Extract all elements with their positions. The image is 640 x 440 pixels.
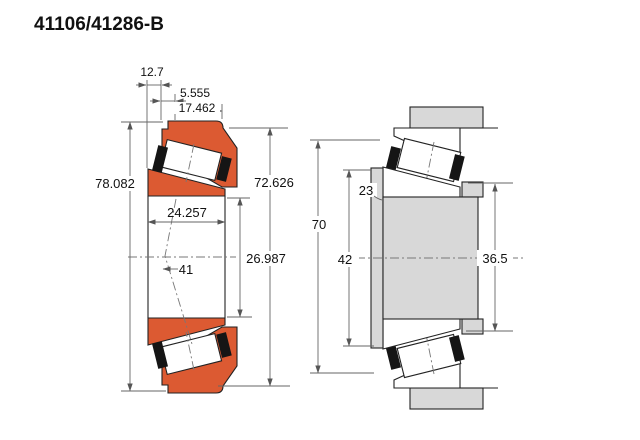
mounted-bearing-bottom-half bbox=[383, 319, 498, 409]
bearing-bottom-half bbox=[148, 318, 237, 393]
part-number-title: 41106/41286-B bbox=[34, 14, 164, 35]
dim-bore-width: 24.257 bbox=[148, 205, 225, 222]
dim-outer-diameter: 78.082 bbox=[90, 122, 140, 391]
dim-apex-distance: 41 bbox=[163, 262, 193, 277]
dim-label-78-082: 78.082 bbox=[95, 176, 135, 191]
right-view-section: 70 42 36.5 23 bbox=[305, 107, 526, 409]
dim-label-23: 23 bbox=[359, 183, 373, 198]
dim-flange-width: 5.555 bbox=[150, 86, 210, 101]
technical-drawing: 41106/41286-B 12.7 bbox=[0, 0, 640, 440]
dim-housing-bore: 70 bbox=[305, 141, 333, 373]
dim-cup-width: 17.462 bbox=[174, 101, 222, 115]
dim-label-24-257: 24.257 bbox=[167, 205, 207, 220]
dim-label-42: 42 bbox=[338, 252, 352, 267]
dim-label-70: 70 bbox=[312, 217, 326, 232]
bearing-top-half bbox=[148, 121, 237, 196]
dim-label-5-555: 5.555 bbox=[180, 86, 210, 100]
drawing-page: 41106/41286-B 12.7 bbox=[0, 0, 640, 440]
dim-step-width: 12.7 bbox=[136, 65, 172, 85]
dim-label-17-462: 17.462 bbox=[179, 101, 216, 115]
dim-label-12-7: 12.7 bbox=[140, 65, 164, 79]
mounted-bearing-top-half bbox=[383, 107, 498, 197]
dim-bore-diameter: 26.987 bbox=[240, 198, 291, 317]
dim-label-41: 41 bbox=[179, 262, 193, 277]
left-view-section: 12.7 5.555 17.462 78.082 72.626 bbox=[90, 65, 299, 393]
dim-label-36-5: 36.5 bbox=[482, 251, 507, 266]
dim-abutment-diameter: 36.5 bbox=[477, 184, 513, 331]
dim-label-72-626: 72.626 bbox=[254, 175, 294, 190]
dim-label-26-987: 26.987 bbox=[246, 251, 286, 266]
